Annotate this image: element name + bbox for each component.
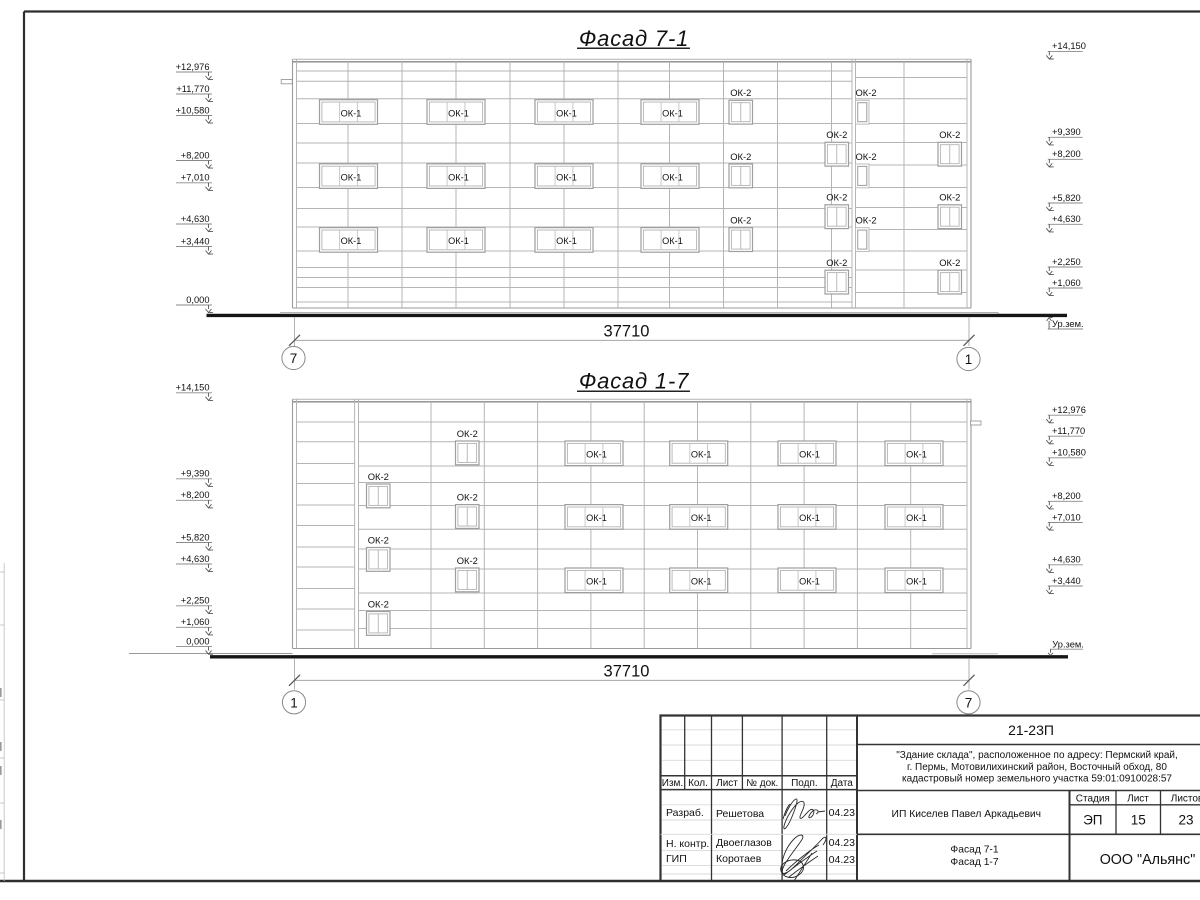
svg-text:ОК-2: ОК-2 xyxy=(457,428,478,439)
svg-text:Ур.зем.: Ур.зем. xyxy=(1052,319,1084,329)
svg-text:кадастровый номер земельного у: кадастровый номер земельного участка 59:… xyxy=(902,774,1172,785)
svg-text:Фасад 1-7: Фасад 1-7 xyxy=(579,369,689,394)
svg-text:+7,010: +7,010 xyxy=(1052,512,1081,522)
svg-text:Изм.: Изм. xyxy=(662,778,683,789)
svg-text:Коротаев: Коротаев xyxy=(716,853,762,865)
svg-text:+10,580: +10,580 xyxy=(1052,448,1086,458)
svg-text:ОК-2: ОК-2 xyxy=(368,598,389,609)
svg-text:Фасад 7-1: Фасад 7-1 xyxy=(579,26,689,51)
svg-text:04.23: 04.23 xyxy=(829,854,855,866)
svg-text:+8,200: +8,200 xyxy=(181,150,210,160)
svg-text:ОК-2: ОК-2 xyxy=(368,471,389,482)
svg-text:Н. контр.: Н. контр. xyxy=(666,838,709,850)
svg-text:Кол.: Кол. xyxy=(688,778,708,789)
svg-text:ОК-2: ОК-2 xyxy=(826,192,847,203)
svg-text:ОК-2: ОК-2 xyxy=(855,151,876,162)
svg-text:+1,060: +1,060 xyxy=(1052,278,1081,288)
svg-text:15: 15 xyxy=(1131,813,1146,828)
svg-text:ЭП: ЭП xyxy=(1083,813,1102,828)
svg-text:+14,150: +14,150 xyxy=(1052,41,1086,51)
svg-text:Листов: Листов xyxy=(1171,794,1200,805)
svg-text:04.23: 04.23 xyxy=(829,807,855,819)
svg-text:7: 7 xyxy=(965,695,973,710)
svg-text:+8,200: +8,200 xyxy=(1052,149,1081,159)
svg-text:+2,250: +2,250 xyxy=(1052,257,1081,267)
svg-text:1: 1 xyxy=(965,352,973,367)
svg-text:+3,440: +3,440 xyxy=(181,236,210,246)
svg-text:+4,630: +4,630 xyxy=(181,554,210,564)
svg-text:ОК-2: ОК-2 xyxy=(730,215,751,226)
svg-text:0,000: 0,000 xyxy=(186,636,209,646)
svg-text:г. Пермь, Мотовилихинский райо: г. Пермь, Мотовилихинский район, Восточн… xyxy=(907,761,1167,773)
svg-text:ОК-2: ОК-2 xyxy=(368,534,389,545)
svg-text:Лист: Лист xyxy=(716,778,738,789)
svg-text:ОК-2: ОК-2 xyxy=(939,192,960,203)
svg-text:21-23П: 21-23П xyxy=(1008,722,1054,738)
svg-text:ИП Киселев Павел Аркадьевич: ИП Киселев Павел Аркадьевич xyxy=(892,809,1042,820)
svg-text:37710: 37710 xyxy=(604,663,650,681)
svg-text:+2,250: +2,250 xyxy=(181,596,210,606)
svg-text:+3,440: +3,440 xyxy=(1052,576,1081,586)
svg-text:ОК-2: ОК-2 xyxy=(730,151,751,162)
svg-text:Подп.: Подп. xyxy=(791,778,818,789)
svg-text:+8,200: +8,200 xyxy=(181,490,210,500)
svg-text:7: 7 xyxy=(290,351,298,366)
svg-text:ОК-2: ОК-2 xyxy=(730,87,751,98)
svg-text:+14,150: +14,150 xyxy=(176,383,210,393)
svg-text:ГИП: ГИП xyxy=(666,853,687,865)
svg-text:Фасад 1-7: Фасад 1-7 xyxy=(950,857,998,868)
svg-text:ОК-2: ОК-2 xyxy=(826,129,847,140)
svg-text:+11,770: +11,770 xyxy=(176,84,209,94)
svg-text:1: 1 xyxy=(290,695,298,710)
svg-text:Разраб.: Разраб. xyxy=(666,807,704,819)
svg-text:ОК-2: ОК-2 xyxy=(457,491,478,502)
svg-text:Дата: Дата xyxy=(831,778,854,789)
svg-text:Решетова: Решетова xyxy=(716,808,764,820)
svg-text:Фасад 7-1: Фасад 7-1 xyxy=(950,844,998,855)
svg-text:+9,390: +9,390 xyxy=(181,469,210,479)
svg-text:ОК-2: ОК-2 xyxy=(939,129,960,140)
svg-text:04.23: 04.23 xyxy=(829,837,855,849)
svg-text:ОК-2: ОК-2 xyxy=(457,555,478,566)
svg-text:ОК-2: ОК-2 xyxy=(855,87,876,98)
svg-text:+12,976: +12,976 xyxy=(176,62,210,72)
svg-text:ОК-2: ОК-2 xyxy=(939,257,960,268)
svg-text:+1,060: +1,060 xyxy=(181,617,210,627)
svg-text:+8,200: +8,200 xyxy=(1052,491,1081,501)
svg-text:37710: 37710 xyxy=(604,323,650,341)
svg-text:0,000: 0,000 xyxy=(186,295,209,305)
svg-text:+5,820: +5,820 xyxy=(1052,193,1081,203)
svg-text:ОК-2: ОК-2 xyxy=(826,257,847,268)
svg-text:Стадия: Стадия xyxy=(1076,794,1110,805)
svg-text:Ур.зем.: Ур.зем. xyxy=(1052,640,1084,650)
svg-text:+4,630: +4,630 xyxy=(1052,214,1081,224)
svg-text:23: 23 xyxy=(1178,813,1193,828)
svg-text:Двоеглазов: Двоеглазов xyxy=(716,837,772,849)
svg-text:Лист: Лист xyxy=(1127,794,1149,805)
svg-text:№ док.: № док. xyxy=(746,778,778,789)
svg-text:+7,010: +7,010 xyxy=(181,173,210,183)
svg-text:+12,976: +12,976 xyxy=(1052,405,1086,415)
svg-text:ООО "Альянс": ООО "Альянс" xyxy=(1100,852,1196,868)
svg-text:+11,770: +11,770 xyxy=(1052,426,1085,436)
svg-text:"Здание склада", расположенное: "Здание склада", расположенное по адресу… xyxy=(896,750,1178,761)
svg-text:+10,580: +10,580 xyxy=(176,105,210,115)
svg-text:+9,390: +9,390 xyxy=(1052,127,1081,137)
svg-text:+4,630: +4,630 xyxy=(181,214,210,224)
svg-text:+5,820: +5,820 xyxy=(181,532,210,542)
svg-text:ОК-2: ОК-2 xyxy=(855,215,876,226)
svg-text:+4,630: +4,630 xyxy=(1052,555,1081,565)
